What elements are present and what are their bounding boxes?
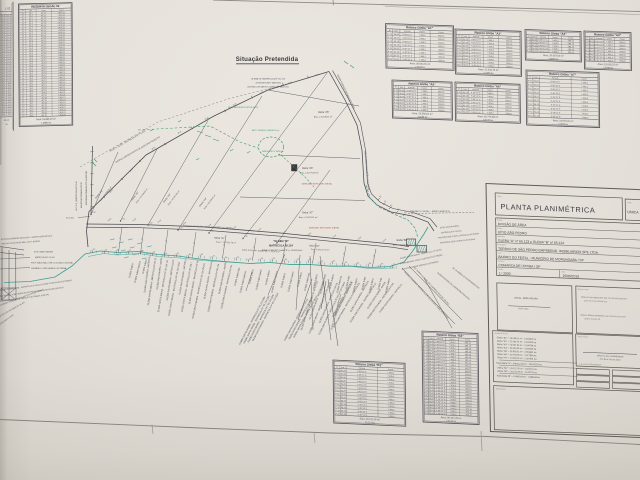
svg-text:35,25: 35,25 — [534, 92, 540, 94]
svg-text:RIBEIRÃO DO FEITAL — BAIRRO MU: RIBEIRÃO DO FEITAL — BAIRRO MUNICÍPIO — [410, 210, 450, 213]
svg-text:7.405,2: 7.405,2 — [581, 102, 589, 104]
svg-text:24: 24 — [201, 254, 203, 256]
svg-text:35,25: 35,25 — [534, 88, 540, 90]
svg-text:283,15: 283,15 — [568, 49, 575, 51]
svg-text:Azimute: Azimute — [437, 337, 444, 340]
svg-text:35,25: 35,25 — [341, 387, 347, 389]
svg-text:DIVISANDO JOSÉ GERALDO EXTREMA: DIVISANDO JOSÉ GERALDO EXTREMA — [31, 267, 67, 270]
svg-text:S 45°12' E: S 45°12' E — [471, 96, 481, 98]
svg-text:283,15: 283,15 — [466, 414, 473, 416]
svg-text:35,25: 35,25 — [429, 395, 435, 397]
svg-text:7.405,2: 7.405,2 — [606, 42, 614, 44]
svg-text:S 45°12' E: S 45°12' E — [471, 55, 481, 57]
svg-text:283,15: 283,15 — [506, 44, 513, 46]
svg-text:ÁREA NÃO EDIFICÁVEL (FAIXA): ÁREA NÃO EDIFICÁVEL (FAIXA) — [302, 182, 332, 185]
svg-text:35,25: 35,25 — [399, 96, 405, 98]
svg-text:35,25: 35,25 — [429, 349, 435, 351]
svg-text:35,25: 35,25 — [463, 108, 469, 110]
svg-text:44: 44 — [117, 250, 119, 252]
svg-text:7.405,2: 7.405,2 — [581, 98, 589, 100]
svg-text:7.405,2: 7.405,2 — [582, 117, 590, 119]
svg-text:7.405,2: 7.405,2 — [388, 413, 396, 415]
svg-text:7.405,2: 7.405,2 — [581, 113, 589, 115]
svg-text:7.405,2: 7.405,2 — [421, 106, 429, 108]
svg-text:12: 12 — [22, 116, 24, 118]
svg-text:35,25: 35,25 — [534, 116, 540, 118]
svg-text:35,25: 35,25 — [534, 112, 540, 114]
svg-text:S 45°12' E: S 45°12' E — [594, 41, 604, 43]
svg-text:35,25: 35,25 — [429, 370, 435, 372]
svg-text:S 45°12' E: S 45°12' E — [471, 102, 481, 104]
svg-text:33: 33 — [321, 261, 323, 263]
svg-text:283,15: 283,15 — [438, 35, 445, 37]
svg-text:Coord.: Coord. — [568, 38, 574, 40]
svg-text:S 45°12' E: S 45°12' E — [471, 49, 481, 51]
svg-text:7.405,2: 7.405,2 — [419, 52, 427, 54]
svg-text:35,25: 35,25 — [394, 52, 400, 54]
svg-text:283,15: 283,15 — [568, 43, 575, 45]
svg-text:7.405,2: 7.405,2 — [581, 82, 589, 84]
svg-text:7.405,2: 7.405,2 — [606, 60, 614, 62]
svg-text:7.405,2: 7.405,2 — [487, 59, 495, 61]
svg-text:283,15: 283,15 — [619, 48, 626, 50]
svg-text:Dist.: Dist. — [464, 88, 468, 91]
svg-text:Folha: Folha — [627, 202, 631, 204]
svg-text:35,25: 35,25 — [463, 112, 469, 114]
svg-text:7.405,2: 7.405,2 — [387, 379, 395, 381]
svg-text:7.405,2: 7.405,2 — [421, 91, 429, 93]
svg-text:35,25: 35,25 — [429, 372, 435, 374]
svg-text:7.405,2: 7.405,2 — [487, 100, 495, 102]
svg-text:35,25: 35,25 — [463, 92, 469, 94]
svg-text:Coord.: Coord. — [582, 78, 588, 80]
svg-text:7.405,2: 7.405,2 — [419, 49, 427, 51]
svg-text:Situação Pretendida: Situação Pretendida — [236, 56, 299, 63]
svg-text:35,25: 35,25 — [340, 370, 346, 372]
svg-text:7.405,2: 7.405,2 — [421, 94, 429, 96]
svg-text:Gleba "A5": Gleba "A5" — [318, 111, 329, 114]
svg-text:35,25: 35,25 — [429, 407, 435, 409]
svg-text:35,25: 35,25 — [341, 407, 347, 409]
svg-text:283,15: 283,15 — [619, 51, 626, 53]
svg-text:35,25: 35,25 — [341, 384, 347, 386]
svg-text:283,15: 283,15 — [506, 47, 513, 49]
svg-text:283,15: 283,15 — [506, 66, 513, 68]
svg-text:46: 46 — [189, 254, 191, 256]
svg-text:283,15: 283,15 — [505, 107, 512, 109]
svg-text:7.405,2: 7.405,2 — [419, 45, 427, 47]
svg-text:4,5: 4,5 — [390, 205, 392, 207]
svg-text:35,25: 35,25 — [394, 34, 400, 36]
svg-text:S 45°12' E: S 45°12' E — [471, 109, 481, 111]
svg-text:S 45°12' E: S 45°12' E — [551, 97, 561, 99]
svg-text:283,15: 283,15 — [506, 50, 513, 52]
svg-text:Coord.: Coord. — [552, 37, 558, 39]
svg-text:7.405,2: 7.405,2 — [419, 56, 427, 58]
svg-text:7.405,2: 7.405,2 — [487, 40, 495, 42]
svg-text:35,25: 35,25 — [534, 104, 540, 106]
svg-text:283,15: 283,15 — [505, 94, 512, 96]
svg-text:35,25: 35,25 — [399, 90, 405, 92]
svg-text:7.405,2: 7.405,2 — [606, 54, 614, 56]
svg-text:13: 13 — [237, 257, 239, 259]
svg-text:P-12: P-12 — [122, 219, 125, 221]
svg-text:S 45°12' E: S 45°12' E — [551, 105, 561, 107]
svg-text:283,15: 283,15 — [506, 57, 513, 59]
svg-text:35,25: 35,25 — [532, 51, 538, 53]
svg-text:35,25: 35,25 — [429, 384, 435, 386]
svg-text:35,25: 35,25 — [534, 100, 540, 102]
svg-text:35,25: 35,25 — [463, 55, 469, 57]
svg-text:7.405,21: 7.405,21 — [58, 114, 66, 116]
svg-text:35,25: 35,25 — [463, 39, 469, 41]
svg-text:12: 12 — [249, 258, 251, 260]
svg-text:283,15: 283,15 — [506, 60, 513, 62]
svg-text:7.405,2: 7.405,2 — [388, 406, 396, 408]
svg-text:S 45°12' E: S 45°12' E — [551, 116, 561, 118]
svg-text:283,15: 283,15 — [619, 54, 626, 56]
svg-text:7.405,2: 7.405,2 — [487, 43, 495, 45]
svg-text:283,15: 283,15 — [506, 63, 513, 65]
svg-text:7.405,2: 7.405,2 — [387, 376, 395, 378]
svg-text:35,25: 35,25 — [341, 380, 347, 382]
svg-text:7.405,2: 7.405,2 — [487, 106, 495, 108]
svg-text:35,25: 35,25 — [394, 48, 400, 50]
svg-text:S 45°12' E: S 45°12' E — [551, 112, 561, 114]
svg-text:7.405,2: 7.405,2 — [421, 109, 429, 111]
svg-text:35,25: 35,25 — [532, 48, 538, 50]
svg-text:7.405,2: 7.405,2 — [388, 402, 396, 404]
svg-text:Coord.: Coord. — [422, 88, 428, 90]
svg-text:7.405,2: 7.405,2 — [421, 100, 429, 102]
svg-text:Azimute: Azimute — [472, 88, 479, 91]
svg-text:2,3075 ha: 2,3075 ha — [558, 124, 569, 126]
svg-text:7.405,2: 7.405,2 — [552, 43, 560, 45]
svg-text:Azim.: Azim. — [42, 9, 47, 12]
svg-text:7.405,2: 7.405,2 — [388, 416, 396, 418]
svg-text:Coord.: Coord. — [449, 339, 455, 341]
svg-text:S 45°12' E: S 45°12' E — [402, 38, 412, 40]
svg-text:35,2: 35,2 — [30, 115, 34, 117]
svg-text:Coord.: Coord. — [487, 90, 493, 92]
svg-text:S 45°12' E: S 45°12' E — [402, 41, 412, 43]
svg-text:S 45°12' E: S 45°12' E — [538, 51, 548, 53]
svg-text:35,25: 35,25 — [534, 81, 540, 83]
svg-text:7.405,2: 7.405,2 — [487, 96, 495, 98]
svg-text:35,25: 35,25 — [463, 49, 469, 51]
svg-text:S 45°12' E: S 45°12' E — [471, 105, 481, 107]
svg-text:283,15: 283,15 — [438, 50, 445, 52]
svg-text:Gleba "B2": Gleba "B2" — [309, 245, 320, 247]
svg-text:35,25: 35,25 — [463, 105, 469, 107]
svg-text:ÚNICA: ÚNICA — [627, 209, 639, 214]
svg-text:MATA NATIVA EXISTENTE (APP): MATA NATIVA EXISTENTE (APP) — [228, 106, 258, 109]
svg-text:Coord.: Coord. — [438, 32, 444, 34]
svg-text:35,25: 35,25 — [399, 109, 405, 111]
svg-text:7.405,2: 7.405,2 — [581, 90, 589, 92]
svg-text:Azimute: Azimute — [540, 36, 547, 39]
svg-text:Azimute: Azimute — [596, 37, 603, 40]
svg-text:7.405,2: 7.405,2 — [581, 94, 589, 96]
svg-text:30: 30 — [369, 263, 371, 265]
svg-text:7.405,2: 7.405,2 — [388, 409, 396, 411]
svg-text:12,5: 12,5 — [8, 114, 12, 116]
svg-text:7.405,2: 7.405,2 — [581, 86, 589, 88]
svg-text:283,15: 283,15 — [438, 95, 445, 97]
svg-text:Dist.: Dist. — [341, 366, 345, 369]
svg-text:ALMEIDA BONANZA PROP.: ALMEIDA BONANZA PROP. — [80, 181, 83, 208]
svg-text:283,15: 283,15 — [438, 91, 445, 93]
svg-text:7.405,2: 7.405,2 — [387, 386, 395, 388]
svg-text:14: 14 — [165, 253, 167, 255]
svg-text:ÁREA NÃO EDIFICÁVEL (FAIXA): ÁREA NÃO EDIFICÁVEL (FAIXA) — [309, 226, 339, 229]
svg-text:7.405,2: 7.405,2 — [581, 106, 589, 108]
svg-text:7.405,2: 7.405,2 — [552, 49, 560, 51]
svg-text:SITIO SANTO ANDRE: SITIO SANTO ANDRE — [34, 251, 54, 254]
svg-text:21: 21 — [297, 259, 299, 261]
svg-text:L 01: L 01 — [5, 6, 11, 10]
svg-text:4,5: 4,5 — [404, 212, 406, 214]
svg-text:35,25: 35,25 — [429, 387, 435, 389]
svg-text:47: 47 — [129, 250, 131, 252]
svg-text:35,25: 35,25 — [341, 377, 347, 379]
svg-text:35,25: 35,25 — [429, 355, 435, 357]
svg-text:Coord.: Coord. — [59, 8, 65, 11]
svg-text:Azimute: Azimute — [359, 367, 366, 370]
svg-text:35,25: 35,25 — [429, 401, 435, 403]
svg-text:35,25: 35,25 — [429, 393, 435, 395]
svg-text:7.405,2: 7.405,2 — [419, 38, 427, 40]
svg-text:283,15: 283,15 — [506, 41, 513, 43]
svg-text:"GLEBA "B": "GLEBA "B" — [273, 239, 290, 243]
svg-text:46: 46 — [285, 259, 287, 261]
svg-text:Azimute: Azimute — [408, 86, 415, 89]
svg-text:S 45°12' E: S 45°12' E — [471, 43, 481, 45]
svg-text:35,25: 35,25 — [399, 99, 405, 101]
svg-text:14: 14 — [333, 260, 335, 262]
svg-text:Título: Título — [497, 195, 501, 198]
svg-text:35,25: 35,25 — [532, 42, 538, 44]
svg-text:283,15: 283,15 — [505, 103, 512, 105]
svg-text:35,25: 35,25 — [532, 39, 538, 41]
svg-text:7.405,2: 7.405,2 — [388, 399, 396, 401]
svg-text:283,15: 283,15 — [568, 52, 575, 54]
svg-text:2,0036 ha: 2,0036 ha — [603, 67, 614, 69]
svg-text:7.405,2: 7.405,2 — [487, 50, 495, 52]
svg-text:283,15: 283,15 — [438, 43, 445, 45]
svg-text:Área = 23.073,01 m²: Área = 23.073,01 m² — [299, 216, 318, 219]
svg-text:R=7.000: R=7.000 — [66, 218, 75, 220]
svg-text:S 45°12' E: S 45°12' E — [550, 89, 560, 91]
svg-text:S 45°12' E: S 45°12' E — [594, 44, 604, 46]
svg-text:7.405,2: 7.405,2 — [388, 396, 396, 398]
svg-text:S 45°12' E: S 45°12' E — [550, 81, 560, 83]
svg-text:35,25: 35,25 — [534, 96, 540, 98]
svg-text:35,25: 35,25 — [341, 394, 347, 396]
svg-text:35,25: 35,25 — [463, 52, 469, 54]
svg-text:S 45°12' E: S 45°12' E — [471, 112, 481, 114]
svg-text:25 m²: 25 m² — [4, 119, 10, 122]
svg-text:S 45°12' E: S 45°12' E — [402, 45, 412, 47]
svg-text:35,25: 35,25 — [394, 55, 400, 57]
svg-text:35,25: 35,25 — [463, 58, 469, 60]
svg-text:35,25: 35,25 — [463, 45, 469, 47]
svg-text:S 45°12' E: S 45°12' E — [471, 46, 481, 48]
svg-text:S 45°12' E: S 45°12' E — [407, 106, 417, 108]
svg-text:Observações: Observações — [496, 387, 506, 390]
svg-text:Gleba "A7": Gleba "A7" — [302, 212, 313, 215]
svg-text:35,25: 35,25 — [394, 44, 400, 46]
svg-text:7.405,2: 7.405,2 — [606, 48, 614, 50]
svg-text:35,25: 35,25 — [399, 106, 405, 108]
svg-text:7.405,2: 7.405,2 — [388, 389, 396, 391]
svg-text:Quadro de Áreas: Quadro de Áreas — [495, 332, 508, 336]
svg-text:35,25: 35,25 — [429, 344, 435, 346]
svg-text:35,25: 35,25 — [463, 42, 469, 44]
svg-text:35,25: 35,25 — [463, 65, 469, 67]
svg-text:PROP. NACIONAL JOSÉ CLODOALDO: PROP. NACIONAL JOSÉ CLODOALDO (DIVISA) — [31, 262, 73, 265]
svg-text:S 45°12' E: S 45°12' E — [471, 39, 481, 41]
svg-text:23: 23 — [345, 262, 347, 264]
svg-text:283,15: 283,15 — [505, 97, 512, 99]
svg-text:18: 18 — [261, 258, 263, 260]
svg-text:Área: 19.885,25 m²: Área: 19.885,25 m² — [36, 118, 56, 122]
svg-text:2,0067 ha: 2,0067 ha — [548, 58, 559, 60]
svg-text:15: 15 — [153, 252, 155, 254]
svg-text:35,25: 35,25 — [341, 400, 347, 402]
svg-text:19: 19 — [93, 249, 95, 251]
svg-text:283,15: 283,15 — [568, 40, 575, 42]
svg-text:Azimute: Azimute — [404, 30, 411, 33]
svg-text:283,15: 283,15 — [505, 113, 512, 115]
svg-text:Coord.: Coord. — [506, 90, 512, 92]
svg-text:35,25: 35,25 — [463, 95, 469, 97]
svg-text:35,25: 35,25 — [394, 37, 400, 39]
svg-text:35,25: 35,25 — [341, 397, 347, 399]
svg-text:35,25: 35,25 — [463, 61, 469, 63]
svg-text:35,25: 35,25 — [429, 410, 435, 412]
svg-text:AVENIDA BONANZA FTE ALENCAR: AVENIDA BONANZA FTE ALENCAR — [85, 170, 88, 205]
svg-text:7.405,2: 7.405,2 — [606, 45, 614, 47]
svg-text:2,0776 ha: 2,0776 ha — [483, 120, 494, 122]
svg-text:7.405,2: 7.405,2 — [487, 56, 495, 58]
svg-text:P-12: P-12 — [92, 212, 95, 214]
svg-text:283,15: 283,15 — [438, 46, 445, 48]
svg-text:35,25: 35,25 — [341, 410, 347, 412]
svg-text:7.405,2: 7.405,2 — [487, 93, 495, 95]
svg-text:35,2: 35,2 — [2, 114, 6, 116]
svg-text:45: 45 — [177, 253, 179, 255]
svg-text:S 45°12' E: S 45°12' E — [471, 59, 481, 61]
svg-text:35,25: 35,25 — [429, 347, 435, 349]
svg-text:7.405,2: 7.405,2 — [606, 57, 614, 59]
svg-text:2,0056 ha: 2,0056 ha — [418, 116, 429, 118]
svg-text:JOSÉ ANTONIO BATISTA: JOSÉ ANTONIO BATISTA — [255, 82, 281, 85]
svg-text:Coord.: Coord. — [388, 369, 394, 371]
svg-text:Área = 20.775,98 m²: Área = 20.775,98 m² — [300, 172, 319, 175]
svg-text:Dist.: Dist. — [394, 29, 398, 32]
svg-text:S 45°12' E: S 45°12' E — [471, 52, 481, 54]
svg-text:35,25: 35,25 — [534, 85, 540, 87]
svg-text:35,25: 35,25 — [394, 41, 400, 43]
svg-text:7.405,2: 7.405,2 — [488, 66, 496, 68]
svg-text:Dist.: Dist. — [400, 86, 404, 89]
svg-text:4,5: 4,5 — [397, 209, 399, 211]
svg-text:7.405,2: 7.405,2 — [387, 382, 395, 384]
svg-text:46: 46 — [225, 257, 227, 259]
svg-text:35,25: 35,25 — [394, 59, 400, 61]
svg-text:S 45°12' E: S 45°12' E — [551, 101, 561, 103]
svg-text:7.405,2: 7.405,2 — [388, 392, 396, 394]
svg-text:S 45°12' E: S 45°12' E — [471, 99, 481, 101]
svg-text:7.405,2: 7.405,2 — [450, 414, 458, 416]
svg-text:7.405,2: 7.405,2 — [419, 35, 427, 37]
svg-text:283,15: 283,15 — [506, 53, 513, 55]
svg-text:7.405,2: 7.405,2 — [487, 46, 495, 48]
svg-text:283,15: 283,15 — [505, 100, 512, 102]
svg-text:(H.O.V.S.) MATRICULA Nº 16.67: (H.O.V.S.) MATRICULA Nº 16.67 — [75, 180, 78, 211]
svg-text:S 45°12' E: S 45°12' E — [594, 47, 604, 49]
svg-text:Área = 26.538,31 m²: Área = 26.538,31 m² — [314, 116, 333, 119]
svg-text:S 45°12' E: S 45°12' E — [471, 92, 481, 94]
svg-text:Área = 26.137,78 m²: Área = 26.137,78 m² — [393, 243, 412, 246]
svg-text:35,25: 35,25 — [341, 390, 347, 392]
svg-text:283,15: 283,15 — [438, 98, 445, 100]
svg-text:Dist.: Dist. — [29, 9, 33, 12]
svg-text:7.405,2: 7.405,2 — [421, 103, 429, 105]
svg-text:S 45°12' E: S 45°12' E — [406, 93, 416, 95]
svg-text:S 45°12' E: S 45°12' E — [407, 109, 417, 111]
svg-text:13: 13 — [105, 250, 107, 252]
svg-text:RESERVA LEGAL 02: RESERVA LEGAL 02 — [31, 4, 60, 9]
svg-text:35,25: 35,25 — [429, 381, 435, 383]
svg-text:S 45°12' E: S 45°12' E — [472, 65, 482, 67]
svg-text:283,15: 283,15 — [438, 110, 445, 112]
svg-text:Coord.: Coord. — [620, 39, 626, 41]
svg-text:1,9885 ha: 1,9885 ha — [41, 122, 52, 124]
svg-text:35,25: 35,25 — [341, 414, 347, 416]
svg-text:4,5: 4,5 — [379, 196, 381, 198]
svg-text:7.405,2: 7.405,2 — [487, 103, 495, 105]
svg-text:S 45°12' E: S 45°12' E — [594, 54, 604, 56]
svg-text:S 45°12' E: S 45°12' E — [403, 59, 413, 61]
svg-text:283,15: 283,15 — [438, 104, 445, 106]
svg-text:7.405,2: 7.405,2 — [552, 51, 560, 53]
svg-text:25/09/2019: 25/09/2019 — [563, 274, 580, 279]
svg-text:S 45°12' E: S 45°12' E — [403, 55, 413, 57]
svg-text:Coord.: Coord. — [419, 31, 425, 33]
svg-text:GLEBA "A" MATRICULA Nº 65.123: GLEBA "A" MATRICULA Nº 65.123 — [251, 78, 286, 81]
svg-text:Azimute: Azimute — [473, 35, 480, 38]
svg-text:7.405,2: 7.405,2 — [487, 113, 495, 115]
svg-text:S 45°12' E: S 45°12' E — [403, 52, 413, 54]
svg-text:7.405,2: 7.405,2 — [387, 372, 395, 374]
svg-text:1 / 2000: 1 / 2000 — [499, 271, 511, 275]
svg-text:Dist.: Dist. — [534, 76, 538, 79]
svg-text:35,25: 35,25 — [429, 375, 435, 377]
svg-text:7.405,2: 7.405,2 — [552, 40, 560, 42]
svg-text:S 45°12' E: S 45°12' E — [551, 93, 561, 95]
svg-text:35,25: 35,25 — [463, 102, 469, 104]
svg-text:283,15: 283,15 — [619, 61, 626, 63]
svg-text:P-12: P-12 — [244, 236, 247, 238]
svg-text:7.405,2: 7.405,2 — [581, 109, 589, 111]
svg-text:MATRICULA 65.124: MATRICULA 65.124 — [269, 244, 293, 248]
svg-text:S 45°12' E: S 45°12' E — [551, 108, 561, 110]
svg-text:Coord.: Coord. — [488, 37, 494, 39]
svg-text:S 45°12' E: S 45°12' E — [407, 100, 417, 102]
svg-text:S 45°12' E: S 45°12' E — [595, 60, 605, 62]
